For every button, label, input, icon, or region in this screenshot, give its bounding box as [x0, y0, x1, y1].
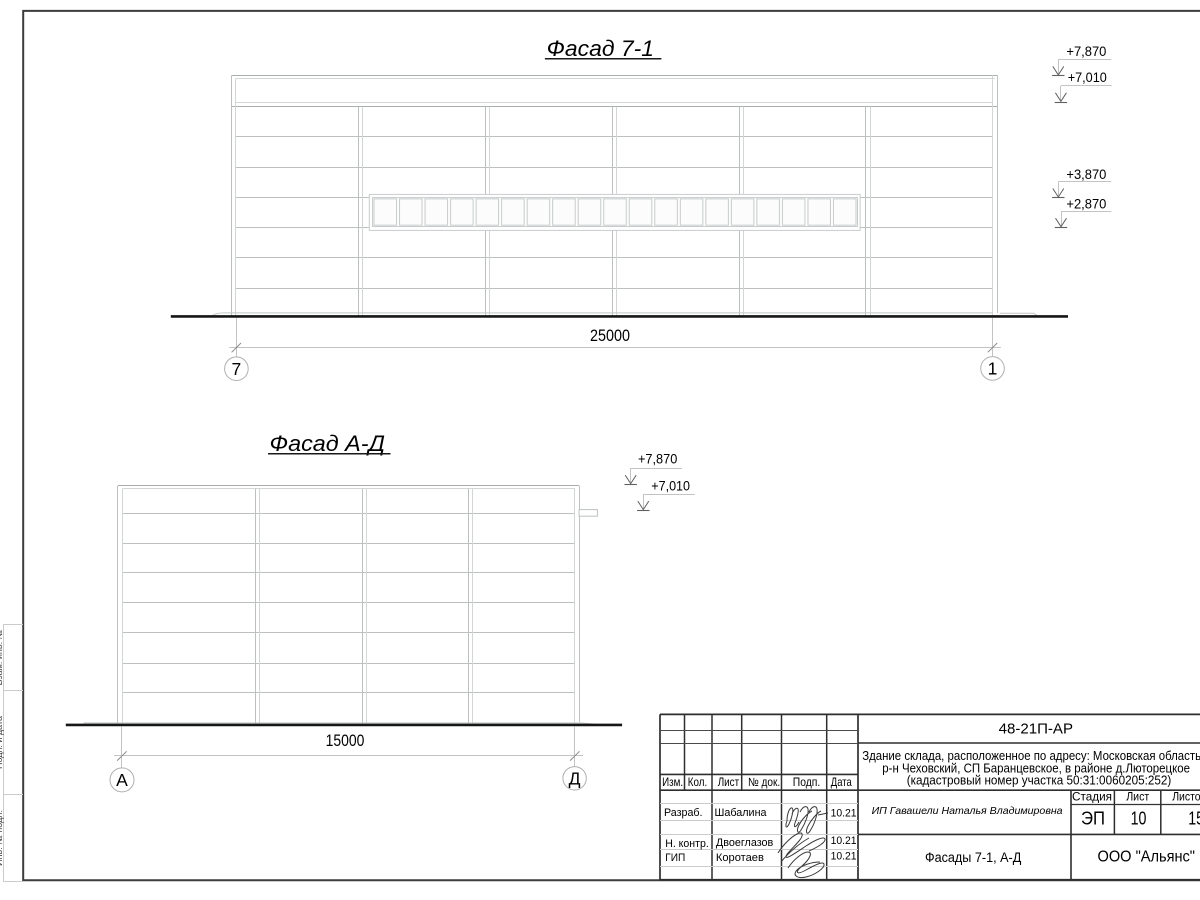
svg-text:15000: 15000	[326, 731, 365, 750]
svg-text:Коротаев: Коротаев	[716, 852, 764, 864]
svg-text:Дата: Дата	[831, 775, 852, 789]
svg-text:10.21: 10.21	[831, 807, 857, 819]
svg-text:А: А	[116, 770, 128, 790]
svg-text:Подп.: Подп.	[793, 775, 821, 789]
svg-text:Листов: Листов	[1172, 789, 1200, 803]
svg-text:+3,870: +3,870	[1066, 167, 1106, 182]
svg-text:+7,870: +7,870	[1066, 44, 1106, 59]
svg-text:+2,870: +2,870	[1066, 196, 1106, 211]
svg-text:Шабалина: Шабалина	[715, 807, 767, 819]
svg-text:ЭП: ЭП	[1081, 807, 1105, 828]
svg-text:Лист: Лист	[1126, 789, 1149, 803]
svg-text:10.21: 10.21	[831, 835, 857, 847]
svg-text:ИП Гавашели Наталья Владимиров: ИП Гавашели Наталья Владимировна	[872, 806, 1063, 817]
svg-text:15: 15	[1188, 807, 1200, 828]
svg-text:Д: Д	[569, 769, 581, 789]
svg-text:1: 1	[988, 359, 998, 379]
svg-text:(кадастровый номер участка 50:: (кадастровый номер участка 50:31:0060205…	[907, 772, 1172, 787]
svg-text:Изм.: Изм.	[662, 775, 683, 789]
svg-text:Фасады 7-1, А-Д: Фасады 7-1, А-Д	[925, 850, 1021, 865]
svg-text:Кол.: Кол.	[688, 775, 707, 789]
svg-text:Подп. и дата: Подп. и дата	[0, 716, 4, 769]
svg-text:Фасад А-Д: Фасад А-Д	[270, 431, 386, 456]
svg-text:Двоеглазов: Двоеглазов	[716, 837, 774, 849]
svg-text:+7,870: +7,870	[638, 451, 678, 466]
svg-text:№ док.: № док.	[748, 775, 780, 789]
svg-text:25000: 25000	[590, 326, 630, 345]
svg-text:ООО "Альянс": ООО "Альянс"	[1098, 849, 1196, 866]
svg-text:Разраб.: Разраб.	[664, 807, 703, 819]
svg-text:7: 7	[232, 359, 242, 379]
svg-text:+7,010: +7,010	[1068, 70, 1107, 85]
svg-text:48-21П-АР: 48-21П-АР	[999, 721, 1073, 738]
svg-text:Взам. инв. №: Взам. инв. №	[0, 629, 4, 685]
svg-text:ГИП: ГИП	[665, 852, 685, 864]
svg-text:Инв. № подл.: Инв. № подл.	[0, 810, 4, 866]
svg-text:10: 10	[1131, 807, 1147, 828]
svg-text:Лист: Лист	[718, 775, 740, 789]
svg-text:Н. контр.: Н. контр.	[665, 838, 709, 850]
svg-text:10.21: 10.21	[831, 850, 857, 862]
svg-text:Фасад 7-1: Фасад 7-1	[547, 36, 654, 61]
svg-text:Стадия: Стадия	[1072, 789, 1112, 803]
svg-text:+7,010: +7,010	[651, 479, 690, 494]
